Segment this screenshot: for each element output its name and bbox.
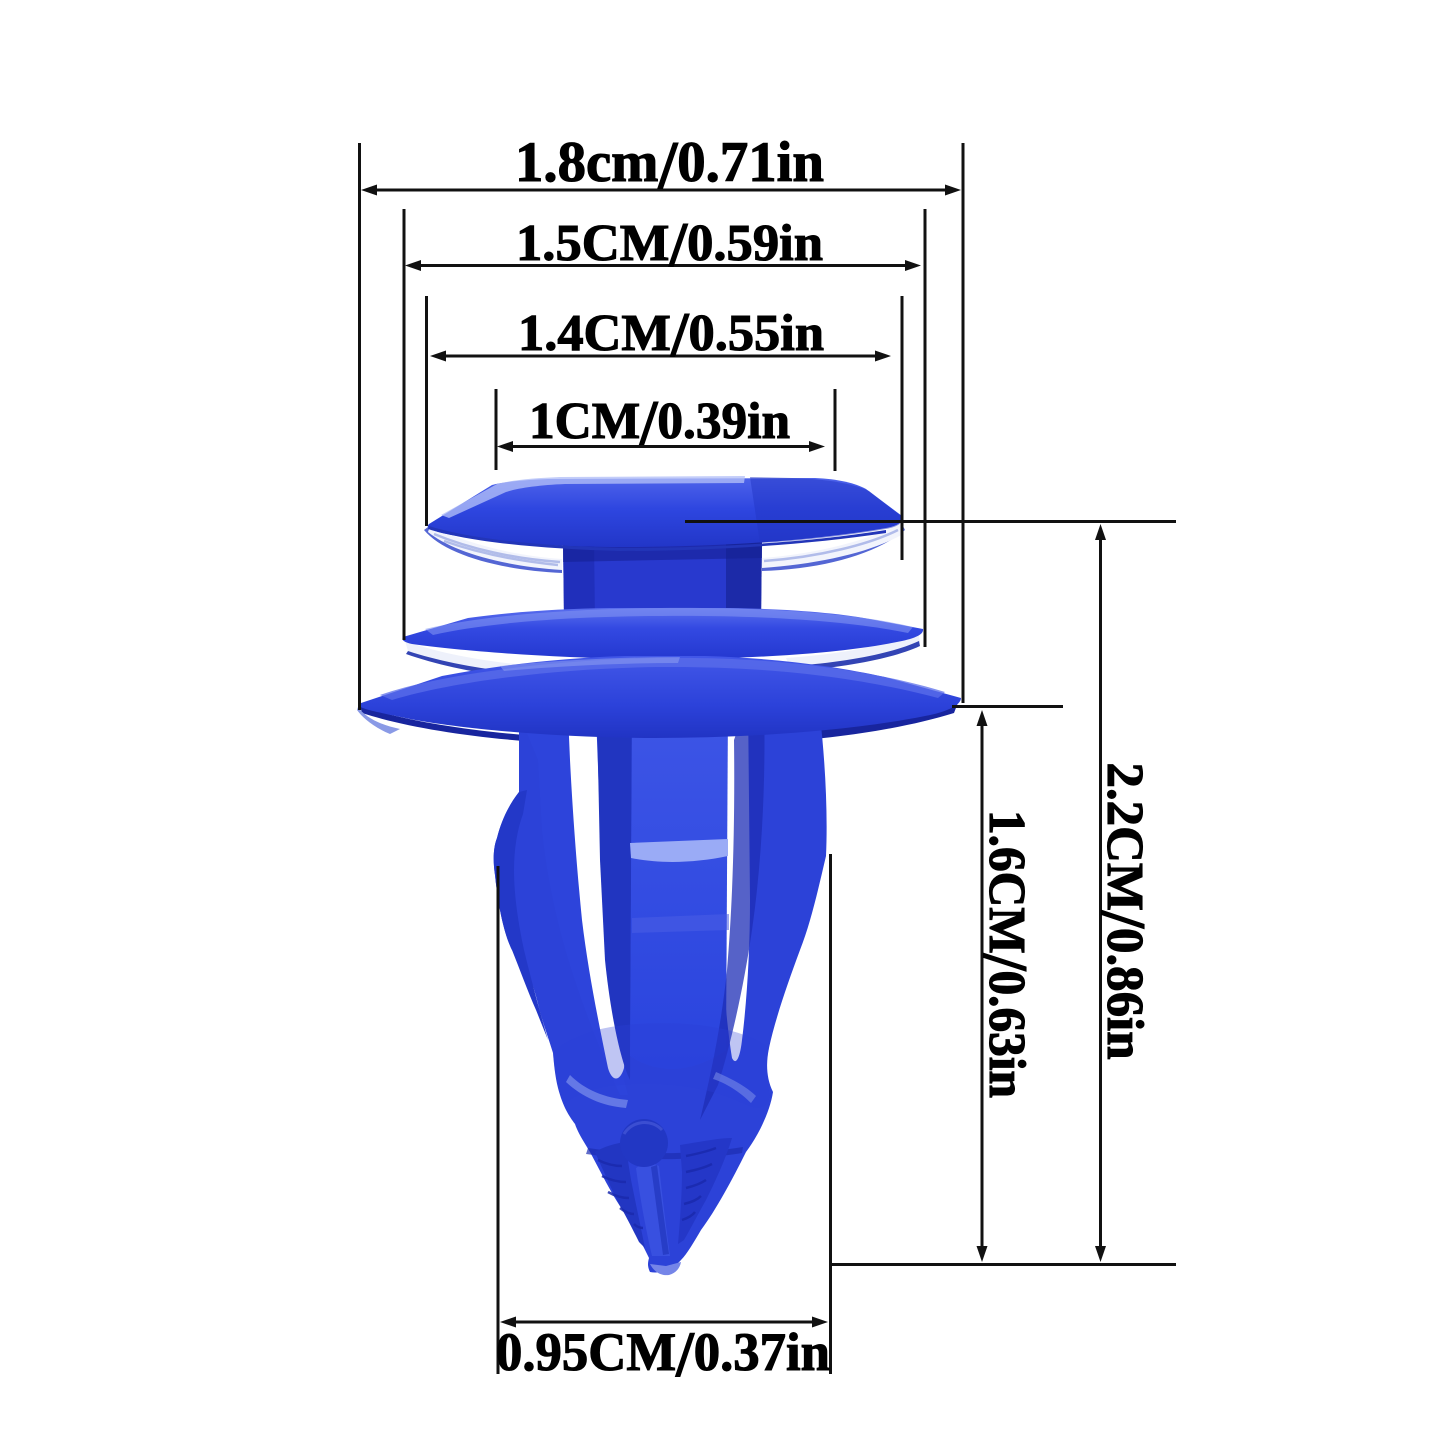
svg-text:1.4CM/0.55in: 1.4CM/0.55in (518, 300, 824, 370)
svg-text:1.6CM/0.63in: 1.6CM/0.63in (970, 810, 1040, 1098)
svg-text:1.8cm/0.71in: 1.8cm/0.71in (515, 127, 824, 203)
svg-text:0.95CM/0.37in: 0.95CM/0.37in (496, 1319, 830, 1391)
svg-text:1CM/0.39in: 1CM/0.39in (529, 388, 790, 458)
svg-text:1.5CM/0.59in: 1.5CM/0.59in (516, 210, 823, 280)
svg-text:2.2CM/0.86in: 2.2CM/0.86in (1088, 763, 1158, 1060)
